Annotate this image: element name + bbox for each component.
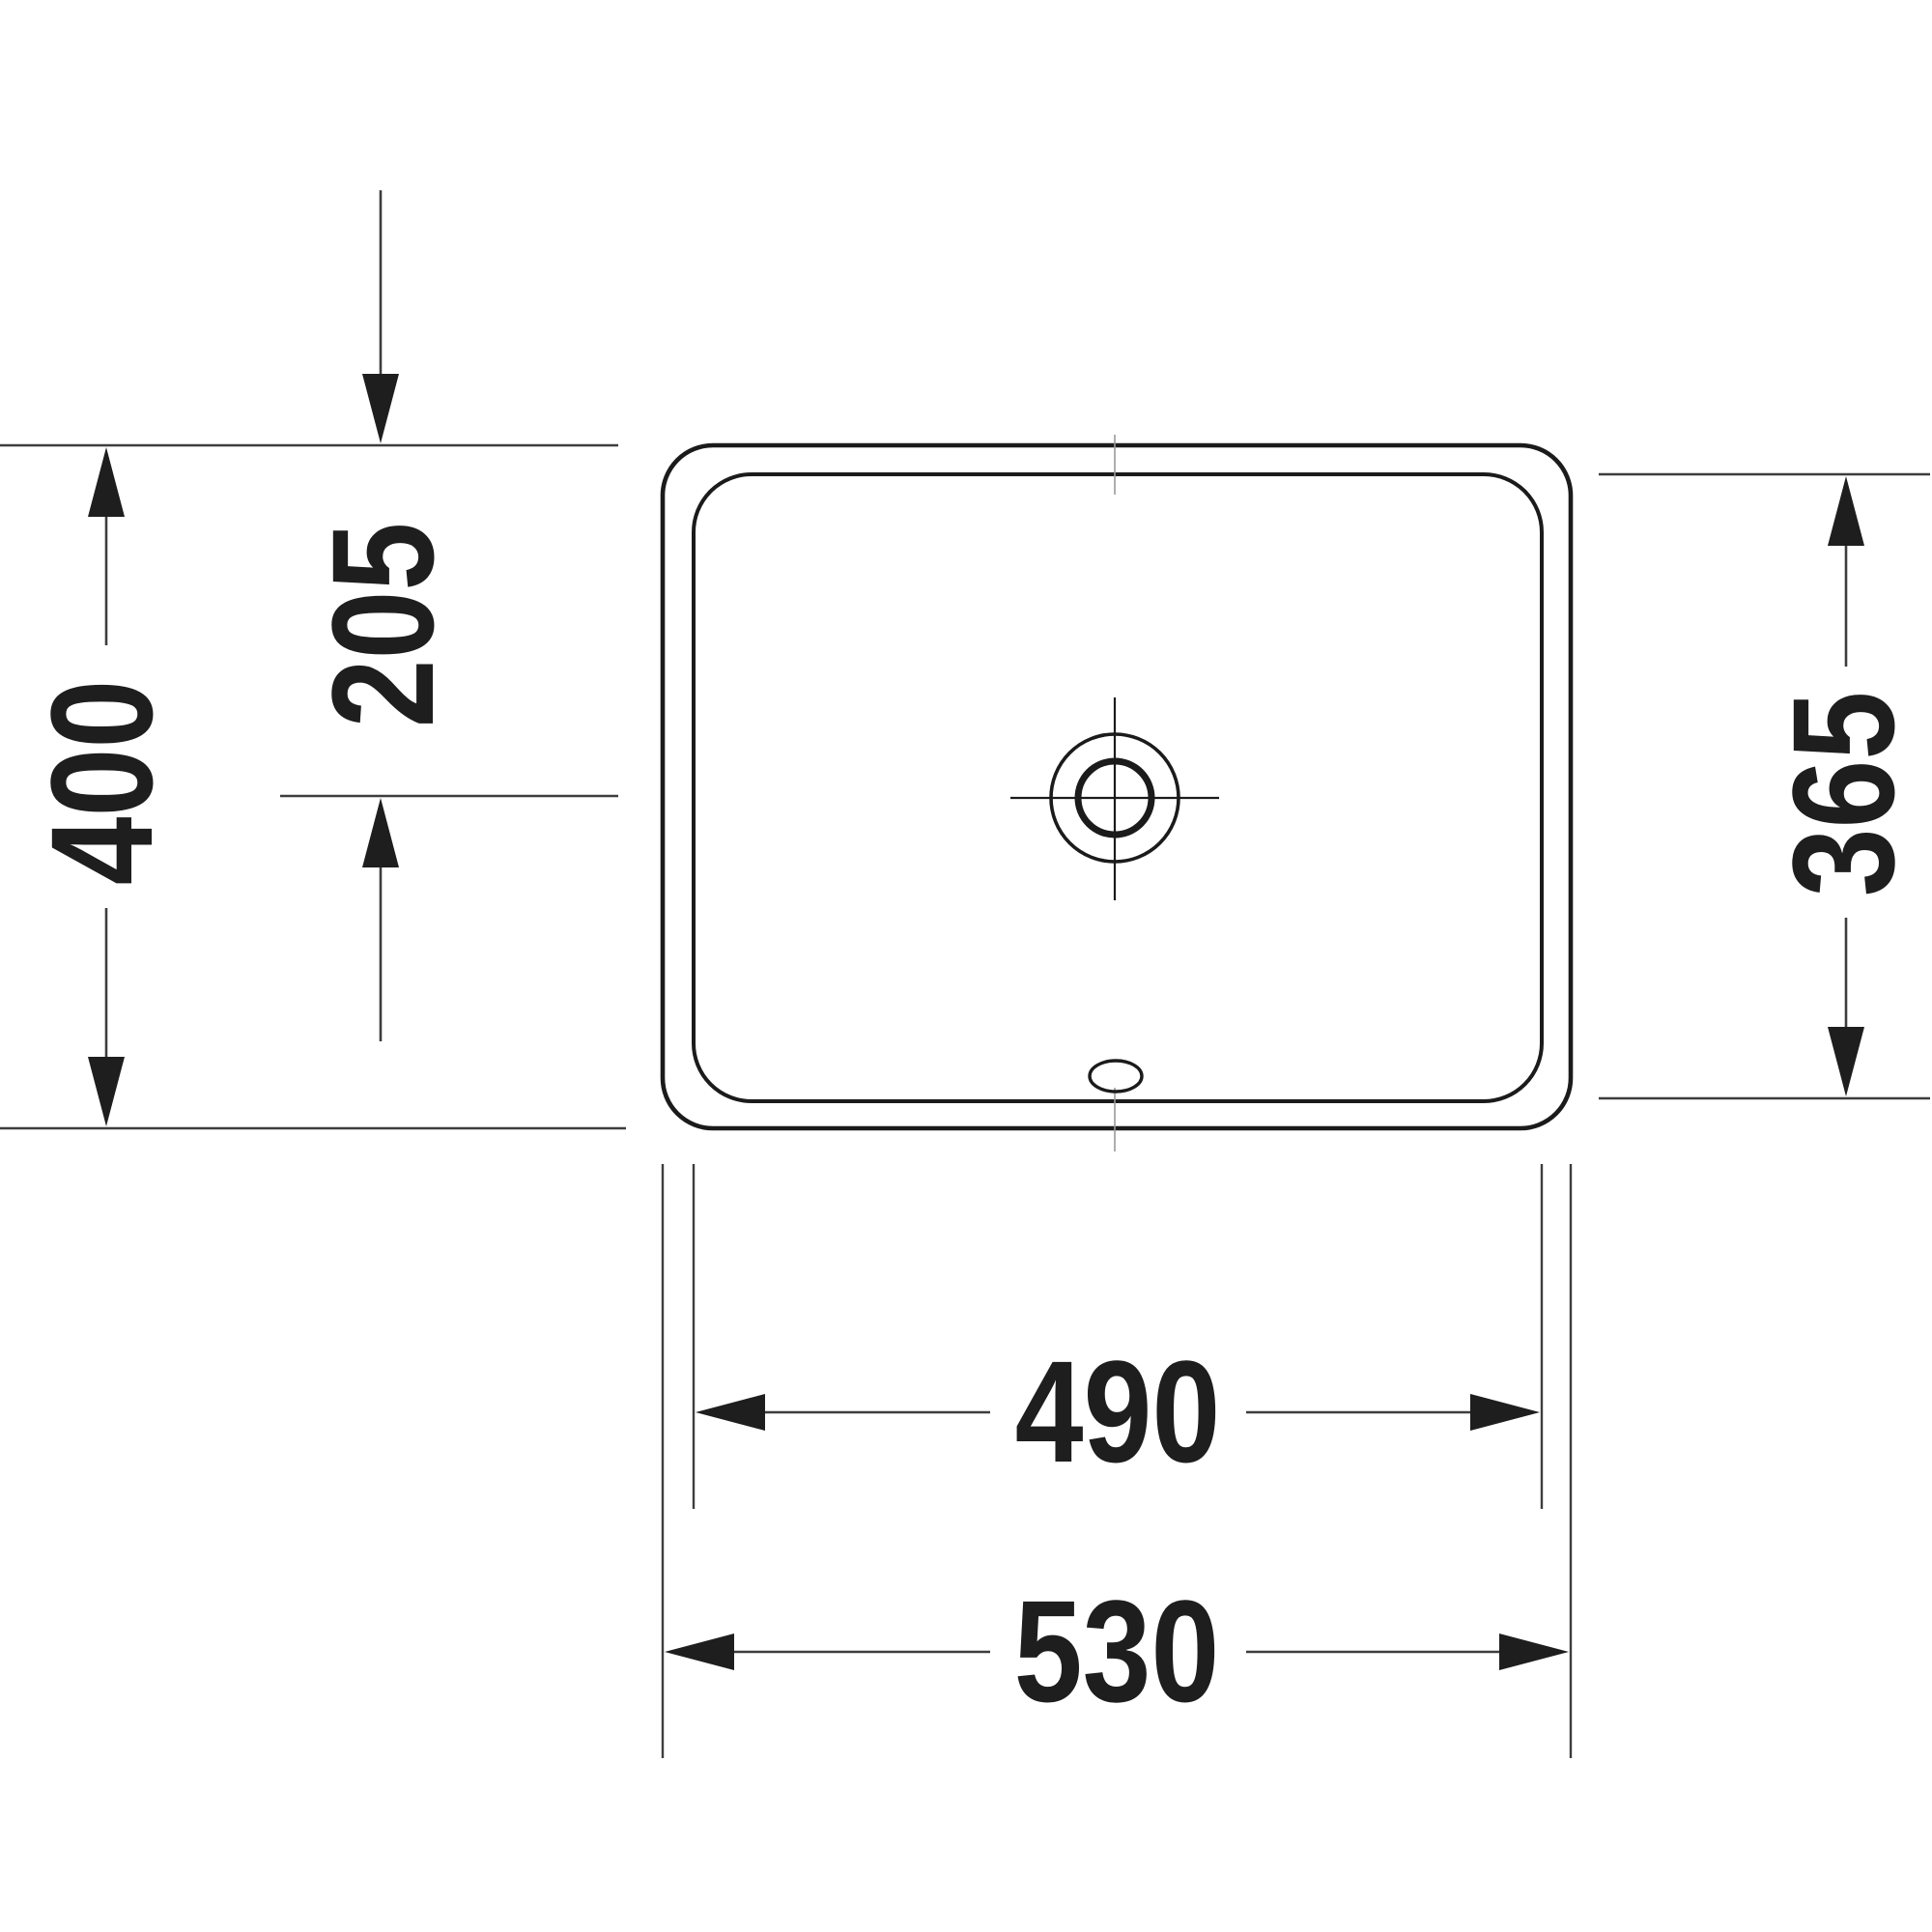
dim-label-overall-depth: 400 [21,680,183,886]
washbasin-outline [663,435,1571,1151]
basin-inner-bowl [694,474,1542,1101]
arrow-right-icon [1499,1634,1569,1670]
drawing-canvas: 205 400 365 490 [0,0,1932,1932]
arrow-down-icon [1828,1027,1864,1096]
arrow-up-icon [1828,476,1864,546]
overflow-mark [1090,1061,1142,1092]
dimension-bowl-depth: 365 [1763,476,1924,1096]
dim-label-drain-offset: 205 [302,523,464,728]
washbasin-dimension-drawing: 205 400 365 490 [0,0,1932,1932]
arrow-down-icon [362,374,399,443]
arrow-right-icon [1470,1394,1540,1431]
arrow-down-icon [88,1057,125,1126]
dimension-overall-depth: 400 [21,447,183,1126]
dimension-bowl-width: 490 [696,1331,1540,1492]
arrow-left-icon [696,1394,765,1431]
dim-label-bowl-width: 490 [1015,1331,1221,1492]
arrow-up-icon [88,447,125,517]
dimension-drain-offset: 205 [302,190,464,1041]
drain-symbol [1010,697,1219,900]
arrow-up-icon [362,798,399,867]
dim-label-bowl-depth: 365 [1763,692,1924,897]
dim-label-overall-width: 530 [1014,1571,1220,1732]
dimension-overall-width: 530 [665,1571,1569,1732]
basin-outer-rim [663,445,1571,1128]
arrow-left-icon [665,1634,734,1670]
